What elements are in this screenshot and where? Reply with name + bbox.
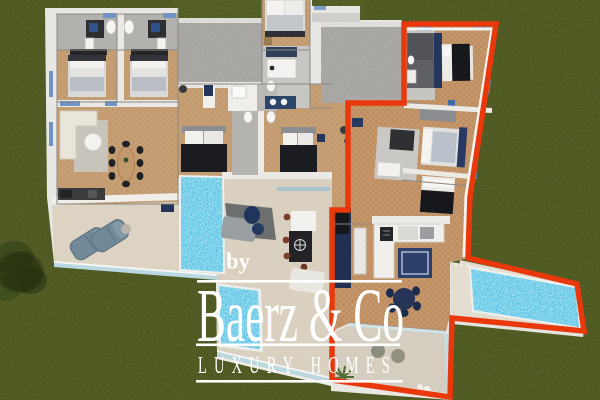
svg-text:by: by bbox=[226, 249, 250, 274]
svg-text:LUXURY HOMES: LUXURY HOMES bbox=[198, 353, 397, 379]
